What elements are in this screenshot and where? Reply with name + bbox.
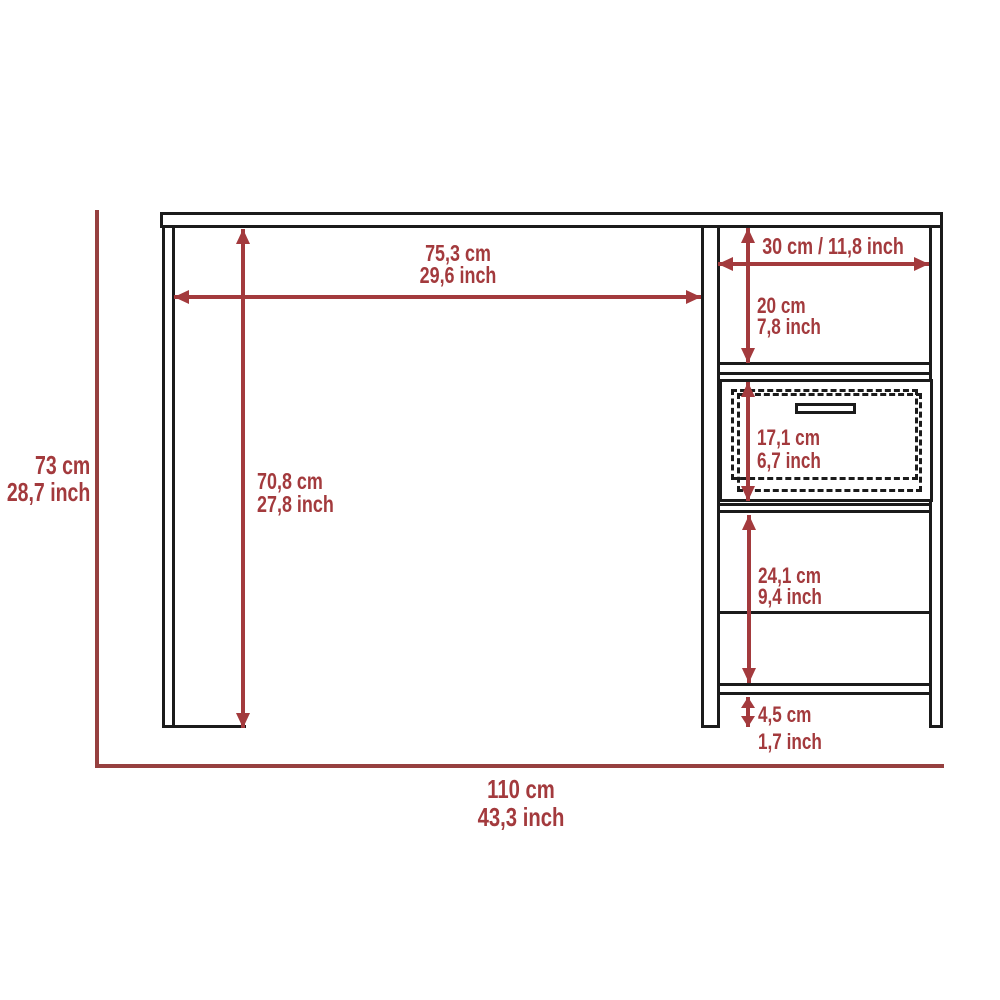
- overall-width-label: 110 cm 43,3 inch: [478, 775, 565, 831]
- cabinet-left-wall: [701, 227, 720, 728]
- desktop-width-label: 75,3 cm 29,6 inch: [420, 242, 497, 286]
- overall-height-extent-line: [95, 210, 99, 768]
- desktop-width-arrow: [174, 295, 701, 299]
- left-leg-floor-line: [162, 725, 246, 728]
- desk-dimension-diagram: 75,3 cm 29,6 inch 30 cm / 11,8 inch 20 c…: [0, 0, 1000, 1000]
- cabinet-bottom-shelf: [718, 683, 929, 695]
- overall-height-label: 73 cm 28,7 inch: [7, 452, 90, 506]
- cabinet-middle-shelf: [718, 503, 929, 513]
- drawer-height-label: 17,1 cm 6,7 inch: [757, 426, 821, 472]
- overall-width-extent-line: [95, 764, 944, 768]
- leg-height-label: 70,8 cm 27,8 inch: [257, 470, 334, 516]
- upper-shelf-cm: 20 cm: [757, 295, 821, 316]
- side-unit-width-label: 30 cm / 11,8 inch: [762, 235, 904, 257]
- upper-shelf-height-label: 20 cm 7,8 inch: [757, 295, 821, 337]
- desktop-width-inch: 29,6 inch: [420, 264, 497, 286]
- overall-height-inch: 28,7 inch: [7, 479, 90, 506]
- desk-top-panel: [160, 212, 943, 228]
- overall-width-cm: 110 cm: [478, 775, 565, 803]
- drawer-handle-slot: [795, 403, 856, 414]
- drawer-height-inch: 6,7 inch: [757, 449, 821, 472]
- side-unit-width-value: 30 cm / 11,8 inch: [762, 235, 904, 257]
- leg-height-inch: 27,8 inch: [257, 493, 334, 516]
- drawer-height-arrow: [746, 382, 750, 501]
- upper-shelf-inch: 7,8 inch: [757, 316, 821, 337]
- desktop-width-cm: 75,3 cm: [420, 242, 497, 264]
- drawer-height-cm: 17,1 cm: [757, 426, 821, 449]
- base-clearance-cm: 4,5 cm: [758, 701, 822, 728]
- upper-shelf-height-arrow: [746, 228, 750, 363]
- lower-shelf-height-arrow: [747, 515, 751, 683]
- base-clearance-arrow: [746, 697, 750, 727]
- overall-width-inch: 43,3 inch: [478, 803, 565, 831]
- lower-shelf-cm: 24,1 cm: [758, 565, 822, 586]
- cabinet-top-shelf: [718, 362, 929, 375]
- base-clearance-inch: 1,7 inch: [758, 728, 822, 755]
- overall-height-cm: 73 cm: [7, 452, 90, 479]
- drawer-front: [719, 379, 933, 502]
- leg-height-arrow: [241, 229, 245, 728]
- lower-shelf-height-label: 24,1 cm 9,4 inch: [758, 565, 822, 607]
- lower-shelf-inch: 9,4 inch: [758, 586, 822, 607]
- base-clearance-label: 4,5 cm 1,7 inch: [758, 701, 822, 755]
- leg-height-cm: 70,8 cm: [257, 470, 334, 493]
